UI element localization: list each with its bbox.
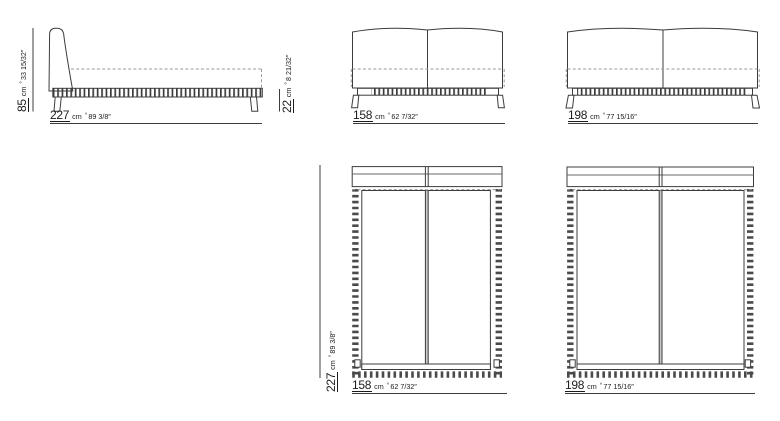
top-view-158-width-label: 158cm°62 7/32″ [352,380,417,392]
front158-base-slats [371,88,486,95]
top158-foot-band [362,364,491,370]
front-view-158-width-label: 158cm°62 7/32″ [353,110,418,122]
approx-symbol: ° [19,81,26,84]
approx-symbol: ° [603,112,606,119]
top198-foot-left [570,360,575,367]
width-inch-value: 62 7/32″ [391,112,418,121]
unit-label: cm [328,360,337,370]
unit-label: cm [284,88,293,98]
width-inch-value: 62 7/32″ [390,382,417,391]
length-inch-value: 89 3/8″ [88,112,111,121]
width-cm-value: 198 [565,380,585,392]
approx-symbol: ° [85,112,88,119]
bed-dimension-sheet: 227cm°89 3/8″ 85cm°33 15/32″ 22cm°8 21/3… [0,0,780,421]
front-view-198-width-label: 198cm°77 15/16″ [568,110,637,122]
base-height-inch-value: 8 21/32″ [284,55,293,82]
top-view-198-width-label: 198cm°77 15/16″ [565,380,634,392]
top-view-158-drawing [320,165,507,394]
front198-left-leg [566,95,574,108]
width-cm-value: 158 [352,380,372,392]
side-view-base-height-label: 22cm°8 21/32″ [282,55,294,113]
technical-drawing-linework [0,0,780,421]
front158-left-leg [352,95,359,108]
width-cm-value: 198 [568,110,588,122]
side-view-height-label: 85cm°33 15/32″ [17,50,29,112]
unit-label: cm [72,112,82,121]
height-inch-value: 33 15/32″ [19,50,28,81]
front198-right-leg [752,95,760,108]
approx-symbol: ° [600,382,603,389]
unit-label: cm [375,112,385,121]
approx-symbol: ° [387,382,390,389]
unit-label: cm [374,382,384,391]
side-mattress-outline [71,69,262,88]
unit-label: cm [587,382,597,391]
top198-foot-right [745,360,750,367]
length-cm-value: 227 [50,110,70,122]
side-view-length-label: 227cm°89 3/8″ [50,110,111,122]
top198-headboard [567,167,754,187]
approx-symbol: ° [328,355,335,358]
top158-center-divider-fill [426,191,428,370]
height-cm-value: 85 [17,98,29,112]
top158-foot-right [494,360,499,367]
top158-headboard [352,167,502,187]
top-view-198-drawing [565,167,755,394]
length-inch-value: 89 3/8″ [328,331,337,354]
front158-right-leg [497,95,504,108]
length-cm-value: 227 [326,372,338,392]
side-right-leg [250,97,257,111]
base-height-cm-value: 22 [282,99,294,113]
side-headboard [49,28,73,91]
top198-foot-band [577,364,744,370]
top158-foot-left [355,360,360,367]
unit-label: cm [590,112,600,121]
top-view-158-length-label: 227cm°89 3/8″ [326,331,338,392]
front198-base-slats [577,88,748,95]
approx-symbol: ° [284,82,291,85]
width-cm-value: 158 [353,110,373,122]
width-inch-value: 77 15/16″ [603,382,634,391]
width-inch-value: 77 15/16″ [606,112,637,121]
side-base-rail [53,88,262,97]
top198-center-divider-fill [659,191,661,370]
approx-symbol: ° [388,112,391,119]
unit-label: cm [19,87,28,97]
